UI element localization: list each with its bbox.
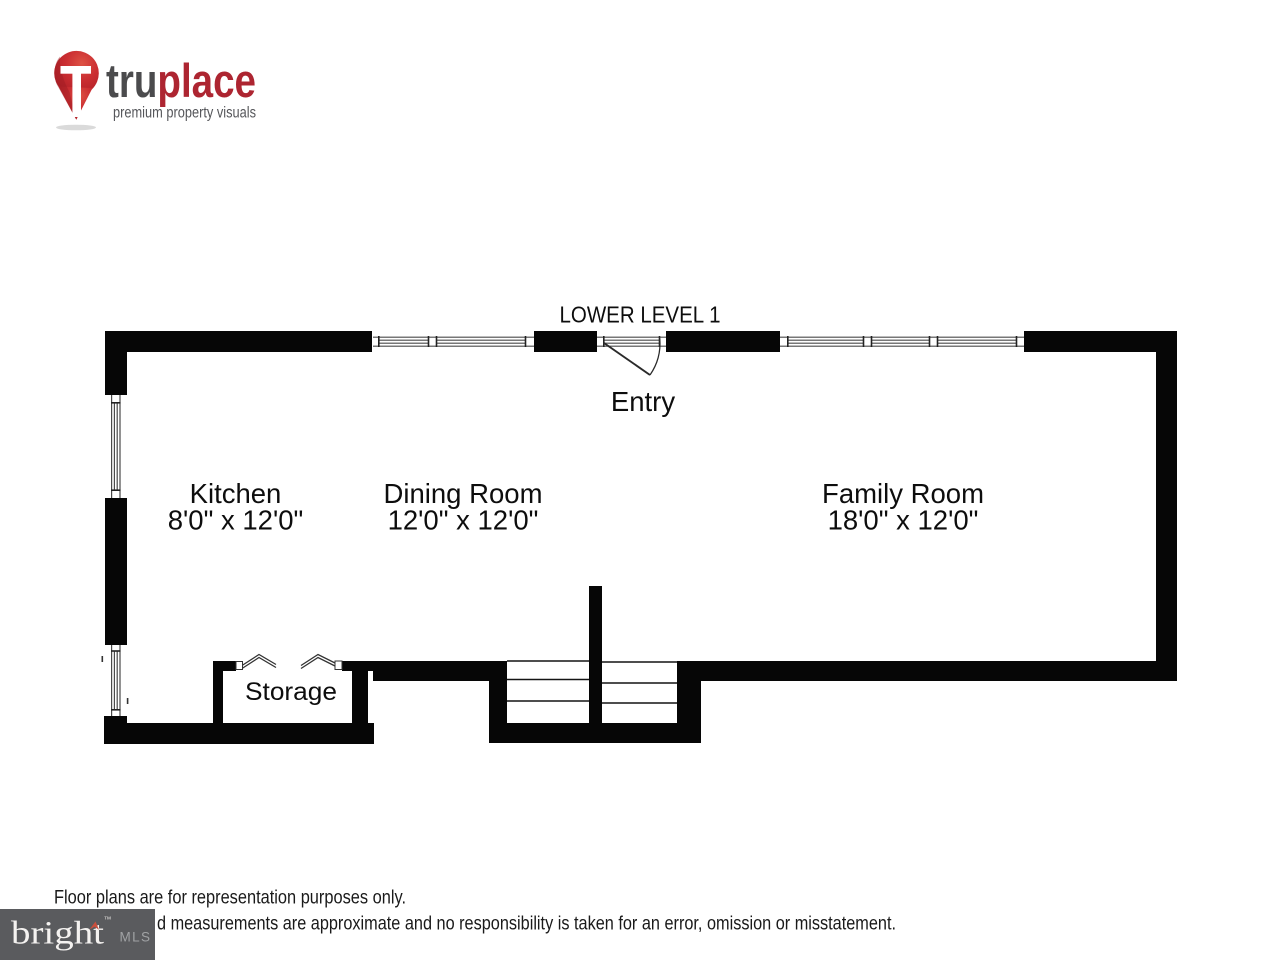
svg-text:12'0" x 12'0": 12'0" x 12'0"	[388, 505, 539, 536]
svg-text:8'0" x 12'0": 8'0" x 12'0"	[168, 505, 304, 536]
svg-text:Entry: Entry	[611, 386, 675, 417]
svg-text:LOWER LEVEL 1: LOWER LEVEL 1	[560, 302, 721, 328]
svg-text:premium property visuals: premium property visuals	[113, 105, 256, 122]
svg-text:d measurements are approximate: d measurements are approximate and no re…	[157, 913, 896, 935]
svg-text:Floor plans are for representa: Floor plans are for representation purpo…	[54, 887, 406, 909]
svg-text:Storage: Storage	[245, 678, 337, 706]
svg-text:bright: bright	[11, 916, 104, 952]
svg-text:MLS: MLS	[120, 930, 152, 945]
svg-text:18'0" x 12'0": 18'0" x 12'0"	[828, 505, 979, 536]
svg-text:truplace: truplace	[106, 54, 256, 107]
svg-text:™: ™	[104, 915, 112, 924]
